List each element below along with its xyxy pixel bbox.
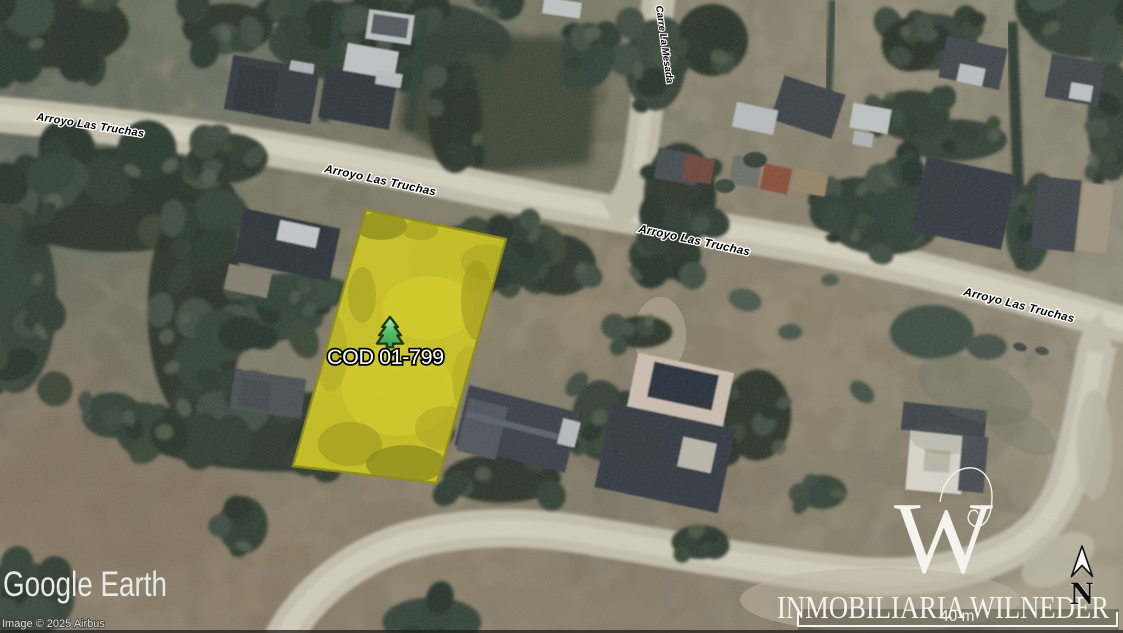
svg-text:W: W [894, 482, 994, 595]
svg-text:INMOBILIARIA WILNEDER: INMOBILIARIA WILNEDER [777, 589, 1110, 625]
svg-text:Google Earth: Google Earth [3, 565, 167, 604]
svg-text:Image © 2025 Airbus: Image © 2025 Airbus [2, 618, 105, 630]
svg-text:COD 01-799: COD 01-799 [327, 345, 444, 369]
svg-text:N: N [1070, 576, 1094, 612]
